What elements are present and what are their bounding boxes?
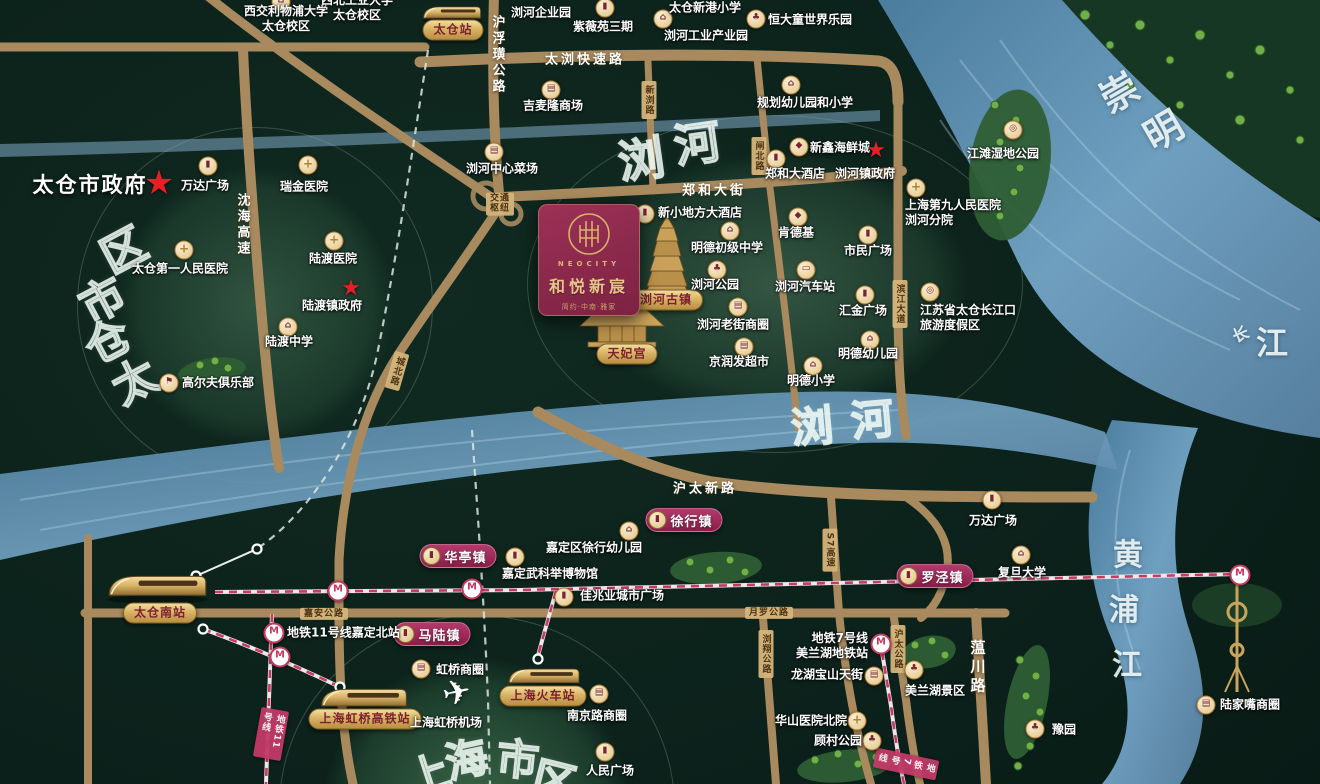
metro-icon: M [264, 623, 285, 644]
taicang-city-area-glyph: 市 [67, 258, 136, 335]
food-icon: ◆ [789, 208, 808, 227]
huangpu-river-glyph: 黄 [1113, 530, 1143, 574]
shop-icon: ▤ [412, 660, 431, 679]
poi-label: 浏河老街商圈 [697, 318, 769, 333]
project-name: 和悦新宸 [549, 273, 629, 297]
poi-label: 浏河工业产业园 [664, 29, 748, 44]
road-label: S7高速 [823, 529, 838, 572]
road-label: 沪浮璜公路 [488, 15, 507, 95]
poi-label: 华山医院北院 [775, 714, 847, 729]
poi-label: 市民广场 [844, 244, 892, 259]
park-icon: ♣ [863, 732, 882, 751]
road-label: 沈海高速 [233, 193, 252, 257]
poi-label: 上海虹桥机场 [410, 716, 482, 731]
poi-label: 陆家嘴商圈 [1220, 698, 1280, 713]
poi-label: 新小地方大酒店 [658, 206, 742, 221]
road-label: 嘉安公路 [300, 608, 348, 620]
poi-label: 人民广场 [586, 764, 634, 779]
poi-label: 嘉定武科举博物馆 [502, 567, 598, 582]
building-icon: ▮ [983, 491, 1002, 510]
liuhe-river-mid-glyph: 浏 [788, 392, 835, 456]
hospital-icon: + [848, 712, 867, 731]
poi-label: 上海第九人民医院浏河分院 [905, 198, 1001, 228]
government-star-icon: ★ [144, 166, 174, 200]
poi-label: 明德初级中学 [691, 241, 763, 256]
shop-icon: ▤ [542, 81, 561, 100]
poi-label: 豫园 [1052, 723, 1076, 738]
shop-icon: ▤ [729, 298, 748, 317]
poi-label: 郑和大酒店 [765, 167, 825, 182]
poi-label: 浏河中心菜场 [466, 162, 538, 177]
town-pill: ▮徐行镇 [645, 508, 722, 532]
poi-label: 浏河汽车站 [775, 280, 835, 295]
road-label: 滨江大道 [893, 280, 908, 328]
liuhe-river-top-glyph: 河 [670, 105, 725, 177]
food-icon: ◆ [790, 138, 809, 157]
view-icon: ◎ [1004, 121, 1023, 140]
poi-label: 肯德基 [778, 226, 814, 241]
building-icon: ▮ [856, 286, 875, 305]
shanghai-city-area-glyph: 区 [527, 743, 583, 784]
poi-label: 汇金广场 [839, 304, 887, 319]
road-label: 郑和大街 [682, 180, 746, 199]
park-icon: ♣ [905, 661, 924, 680]
metro-icon: M [871, 634, 892, 655]
building-icon: ▮ [199, 157, 218, 176]
park-icon: ♣ [1026, 720, 1045, 739]
poi-label: 江滩湿地公园 [967, 147, 1039, 162]
huangpu-river-glyph: 江 [1112, 640, 1142, 684]
station-badge: 上海虹桥高铁站 [308, 709, 421, 730]
poi-label: 太仓新港小学 [669, 1, 741, 16]
taicang-city-area-glyph: 太 [99, 339, 168, 416]
building-icon: ▮ [859, 226, 878, 245]
shop-icon: ▤ [485, 143, 504, 162]
poi-label: 紫薇苑三期 [573, 20, 633, 35]
poi-label: 万达广场 [181, 179, 229, 194]
road-label: 月罗公路 [745, 607, 793, 619]
road-label: 蕰川路 [968, 640, 989, 697]
project-logo-card: NEOCITY 和悦新宸 简约·中南·雅家 [538, 204, 640, 316]
poi-label: 新鑫海鲜城 [810, 141, 870, 156]
school-icon: ⌂ [721, 222, 740, 241]
poi-label: 陆渡医院 [309, 252, 357, 267]
town-pill-label: 华亭镇 [444, 547, 486, 566]
metro-line-ribbon: 地铁11号线 [253, 707, 289, 761]
hospital-icon: + [299, 156, 318, 175]
poi-label: 地铁7号线美兰湖地铁站 [796, 631, 868, 661]
bus-icon: ▭ [797, 261, 816, 280]
building-icon: ▮ [422, 547, 440, 565]
hospital-icon: + [325, 232, 344, 251]
building-icon: ▮ [648, 511, 666, 529]
government-star-icon: ★ [341, 278, 361, 300]
building-icon: ▮ [555, 588, 574, 607]
school-icon: ⌂ [620, 522, 639, 541]
road-label: 城北路 [385, 351, 410, 392]
poi-label: 佳兆业城市广场 [580, 589, 664, 604]
town-pill: ▮马陆镇 [393, 622, 470, 646]
school-icon: ⌂ [1012, 546, 1031, 565]
huangpu-river-glyph: 浦 [1109, 585, 1139, 629]
chongming-glyph: 明 [1132, 95, 1192, 162]
liuhe-river-top-glyph: 浏 [614, 121, 669, 193]
poi-label: 瑞金医院 [280, 180, 328, 195]
poi-label: 明德小学 [787, 374, 835, 389]
poi-label: 恒大童世界乐园 [768, 13, 852, 28]
chongming-glyph: 崇 [1088, 57, 1148, 124]
station-badge: 太仓站 [422, 20, 483, 41]
road-label: 太浏快速路 [545, 49, 625, 68]
view-icon: ◎ [921, 283, 940, 302]
shop-icon: ▤ [1197, 696, 1216, 715]
yangtze-river-glyph: 江 [1256, 318, 1288, 364]
label-overlay: 区市仓太上海市区浏河浏河崇明黄浦江长江太浏快速路郑和大街沪太新路沈海高速沪浮璜公… [0, 0, 1320, 784]
shop-icon: ▤ [865, 667, 884, 686]
station-badge: 浏河古镇 [629, 290, 703, 311]
road-label: 新浏路 [642, 81, 657, 119]
shanghai-city-area-glyph: 上 [399, 737, 458, 784]
yangtze-river-glyph: 长 [1228, 319, 1252, 347]
map-canvas: 区市仓太上海市区浏河浏河崇明黄浦江长江太浏快速路郑和大街沪太新路沈海高速沪浮璜公… [0, 0, 1320, 784]
metro-line-badge-icon: M [1230, 565, 1251, 586]
poi-label: 南京路商圈 [567, 709, 627, 724]
taicang-city-area-glyph: 仓 [72, 299, 141, 376]
metro-line-badge-icon: M [328, 581, 349, 602]
road-label: 沪太公路 [891, 625, 906, 673]
project-seal-icon [567, 212, 611, 256]
hospital-icon: + [175, 241, 194, 260]
hospital-icon: + [907, 179, 926, 198]
golf-icon: ⚑ [160, 374, 179, 393]
poi-label: 江苏省太仓长江口旅游度假区 [920, 303, 1016, 333]
poi-label: 京润发超市 [709, 355, 769, 370]
poi-label: 美兰湖景区 [905, 684, 965, 699]
road-label: 沪太新路 [673, 478, 737, 497]
school-icon: ⌂ [782, 76, 801, 95]
station-badge: 上海火车站 [499, 686, 586, 707]
town-pill-label: 罗泾镇 [921, 567, 963, 586]
poi-label: 顾村公园 [814, 734, 862, 749]
building-icon: ▮ [899, 567, 917, 585]
town-pill: ▮华亭镇 [419, 544, 496, 568]
poi-label: 地铁11号线嘉定北站 [287, 626, 400, 641]
town-pill-label: 马陆镇 [418, 625, 460, 644]
poi-label: 万达广场 [969, 514, 1017, 529]
poi-label: 浏河企业园 [511, 6, 571, 21]
metro-line-badge-icon: M [462, 579, 483, 600]
poi-label: 龙湖宝山天街 [791, 668, 863, 683]
poi-label: 西交利物浦大学太仓校区 [244, 4, 328, 34]
poi-label: 浏河公园 [691, 278, 739, 293]
shop-icon: ▤ [590, 685, 609, 704]
town-pill-label: 徐行镇 [670, 511, 712, 530]
liuhe-river-mid-glyph: 河 [848, 385, 895, 449]
town-pill: ▮罗泾镇 [896, 564, 973, 588]
poi-label: 太仓第一人民医院 [132, 262, 228, 277]
building-icon: ▮ [506, 548, 525, 567]
plane-icon: ✈ [436, 673, 479, 716]
station-badge: 天妃宫 [596, 344, 657, 365]
building-icon: ▮ [596, 743, 615, 762]
project-tagline: 简约·中南·雅家 [562, 302, 616, 312]
shanghai-city-area-glyph: 市 [494, 724, 542, 784]
poi-label: 明德幼儿园 [838, 347, 898, 362]
city-government-label: 太仓市政府 [33, 169, 148, 199]
poi-label: 复旦大学 [998, 566, 1046, 581]
poi-label: 嘉定区徐行幼儿园 [546, 541, 642, 556]
metro-line-ribbon: 地铁7号线 [873, 748, 940, 781]
poi-label: 浏河镇政府 [835, 167, 895, 182]
shanghai-city-area-glyph: 海 [439, 723, 493, 784]
park-icon: ♣ [747, 10, 766, 29]
project-brand: NEOCITY [558, 260, 620, 268]
metro-line-badge-icon: M [270, 647, 291, 668]
poi-label: 西北工业大学太仓校区 [321, 0, 393, 23]
road-label: 浏翔公路 [759, 630, 774, 678]
road-label: 交通 枢纽 [486, 193, 514, 216]
poi-label: 高尔夫俱乐部 [182, 376, 254, 391]
station-badge: 太仓南站 [123, 603, 197, 624]
building-icon: ▮ [596, 0, 615, 18]
poi-label: 规划幼儿园和小学 [757, 96, 853, 111]
poi-label: 陆渡中学 [265, 335, 313, 350]
government-star-icon: ★ [866, 140, 886, 162]
poi-label: 吉麦隆商场 [523, 99, 583, 114]
